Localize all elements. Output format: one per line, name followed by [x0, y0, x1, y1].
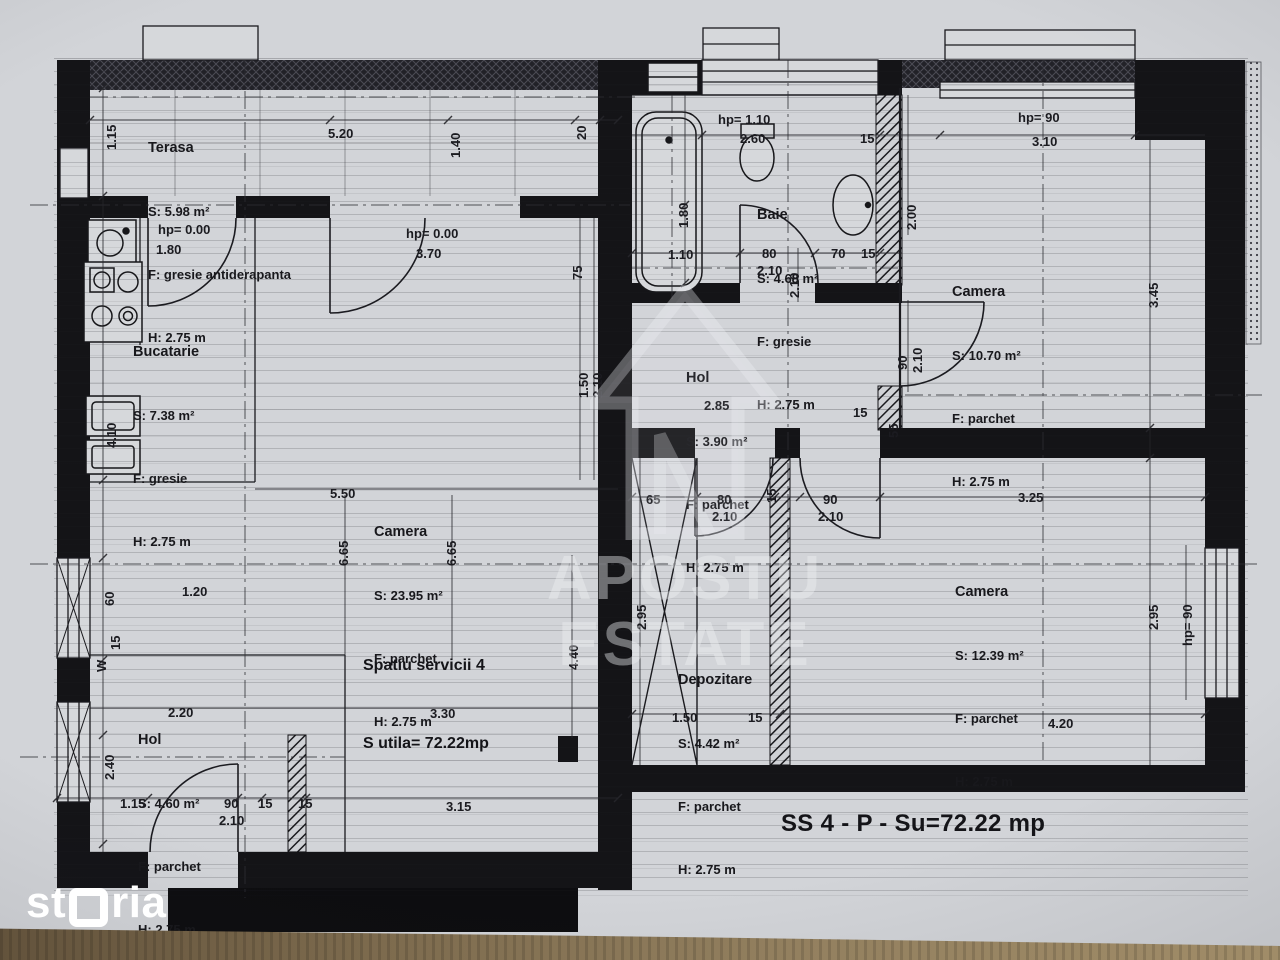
dimension-label: 1.40: [448, 133, 463, 158]
room-name: Terasa: [148, 138, 291, 159]
room-name: Hol: [138, 730, 201, 751]
storia-logo-o-icon: [69, 888, 108, 927]
storia-logo: st ria: [26, 878, 166, 928]
dimension-label: 2.40: [102, 755, 117, 780]
dimension-label: 1.15: [104, 125, 119, 150]
room-name: Hol: [686, 368, 749, 389]
dimension-label: 1.80: [676, 203, 691, 228]
room-height: H: 2.75 m: [952, 471, 1021, 492]
dimension-label: 80: [762, 246, 776, 261]
dimension-label: hp= 90: [1180, 604, 1195, 646]
dimension-label: 2.10: [757, 263, 782, 278]
dimension-label: 1.10: [668, 247, 693, 262]
dimension-label: 15: [764, 489, 779, 503]
dimension-label: 15: [298, 796, 312, 811]
storia-logo-suffix: ria: [111, 878, 166, 928]
dimension-label: 1.50: [576, 373, 591, 398]
room-floor: F: parchet: [955, 708, 1024, 729]
room-height: H: 2.75 m: [955, 771, 1024, 792]
dimension-label: 2.95: [1146, 605, 1161, 630]
dimension-label: 15: [258, 796, 272, 811]
dimension-label: 4.10: [104, 423, 119, 448]
dimension-label: 1.15: [120, 796, 145, 811]
unit-name: Spatiu servicii 4: [363, 653, 489, 679]
label-layer: Terasa S: 5.98 m² F: gresie antiderapant…: [0, 0, 1280, 960]
dimension-label: 15: [108, 636, 123, 650]
room-label-camera-sus: Camera S: 10.70 m² F: parchet H: 2.75 m: [952, 240, 1021, 534]
room-height: H: 2.75 m: [757, 394, 818, 415]
dimension-label: 4.40: [566, 645, 581, 670]
room-area: S: 10.70 m²: [952, 345, 1021, 366]
room-name: Camera: [955, 582, 1024, 603]
dimension-label: hp= 0.00: [158, 222, 210, 237]
room-label-baie: Baie S: 4.68 m² F: gresie H: 2.75 m: [757, 163, 818, 457]
dimension-label: 6.65: [444, 541, 459, 566]
unit-label: Spatiu servicii 4 S utila= 72.22mp: [363, 601, 489, 809]
dimension-label: 3.25: [1018, 490, 1043, 505]
dimension-label: 1.20: [182, 584, 207, 599]
room-name: Baie: [757, 205, 818, 226]
dimension-label: 3.30: [430, 706, 455, 721]
dimension-label: 90: [895, 356, 910, 370]
dimension-label: 70: [831, 246, 845, 261]
room-name: Camera: [374, 522, 443, 543]
room-label-depozitare: Depozitare S: 4.42 m² F: parchet H: 2.75…: [678, 628, 752, 922]
dimension-label: 2.60: [740, 131, 765, 146]
floorplan-photo: Terasa S: 5.98 m² F: gresie antiderapant…: [0, 0, 1280, 960]
dimension-label: 65: [646, 492, 660, 507]
dimension-label: 3.45: [1146, 283, 1161, 308]
dimension-label: 15: [853, 405, 867, 420]
room-label-hol-dreapta: Hol S: 3.90 m² F: parchet H: 2.75 m: [686, 326, 749, 620]
dimension-label: 90: [823, 492, 837, 507]
room-floor: F: parchet: [678, 796, 752, 817]
storia-logo-prefix: st: [26, 878, 66, 928]
room-label-bucatarie: Bucatarie S: 7.38 m² F: gresie H: 2.75 m: [133, 300, 199, 594]
dimension-label: 4.20: [1048, 716, 1073, 731]
dimension-label: 6.65: [336, 541, 351, 566]
dimension-label: 15: [861, 246, 875, 261]
dimension-label: 2.10: [818, 509, 843, 524]
dimension-label: 2.10: [712, 509, 737, 524]
room-area: S: 4.60 m²: [138, 793, 201, 814]
dimension-label: 1.80: [156, 242, 181, 257]
dimension-label: hp= 90: [1018, 110, 1060, 125]
dimension-label: 3.15: [446, 799, 471, 814]
room-area: S: 12.39 m²: [955, 645, 1024, 666]
room-label-camera-jos: Camera S: 12.39 m² F: parchet H: 2.75 m: [955, 540, 1024, 834]
dimension-label: 2.10: [590, 373, 605, 398]
dimension-label: 1.50: [672, 710, 697, 725]
dimension-label: 2.10: [787, 273, 802, 298]
dimension-label: 20: [574, 126, 589, 140]
dimension-label: 5.20: [328, 126, 353, 141]
dimension-label: 2.00: [904, 205, 919, 230]
dimension-label: 15: [748, 710, 762, 725]
room-area: S: 5.98 m²: [148, 201, 291, 222]
dimension-label: 3.70: [416, 246, 441, 261]
dimension-label: hp= 0.00: [406, 226, 458, 241]
room-floor: F: gresie: [133, 468, 199, 489]
room-name: Camera: [952, 282, 1021, 303]
dimension-label: 55: [886, 424, 901, 438]
dimension-label: 3.10: [1032, 134, 1057, 149]
plan-title: SS 4 - P - Su=72.22 mp: [781, 810, 1045, 838]
room-area: S: 7.38 m²: [133, 405, 199, 426]
room-floor: F: parchet: [952, 408, 1021, 429]
room-area: S: 4.42 m²: [678, 733, 752, 754]
dimension-label: 2.10: [910, 348, 925, 373]
room-floor: F: gresie antiderapanta: [148, 264, 291, 285]
room-name: Depozitare: [678, 670, 752, 691]
dimension-label: 2.95: [634, 605, 649, 630]
room-height: H: 2.75 m: [678, 859, 752, 880]
dimension-label: 2.20: [168, 705, 193, 720]
room-floor: F: gresie: [757, 331, 818, 352]
dimension-label: 5.50: [330, 486, 355, 501]
unit-area: S utila= 72.22mp: [363, 731, 489, 757]
dimension-label: 60: [102, 592, 117, 606]
room-area: S: 3.90 m²: [686, 431, 749, 452]
room-name: Bucatarie: [133, 342, 199, 363]
dimension-label: 2.85: [704, 398, 729, 413]
dimension-label: 15: [860, 131, 874, 146]
dimension-label: 2.10: [219, 813, 244, 828]
dimension-label: 80: [717, 492, 731, 507]
dimension-label: W: [94, 660, 109, 672]
room-height: H: 2.75 m: [133, 531, 199, 552]
room-floor: F: parchet: [138, 856, 201, 877]
dimension-label: 90: [224, 796, 238, 811]
dimension-label: hp= 1.10: [718, 112, 770, 127]
room-height: H: 2.75 m: [686, 557, 749, 578]
dimension-label: 75: [570, 266, 585, 280]
